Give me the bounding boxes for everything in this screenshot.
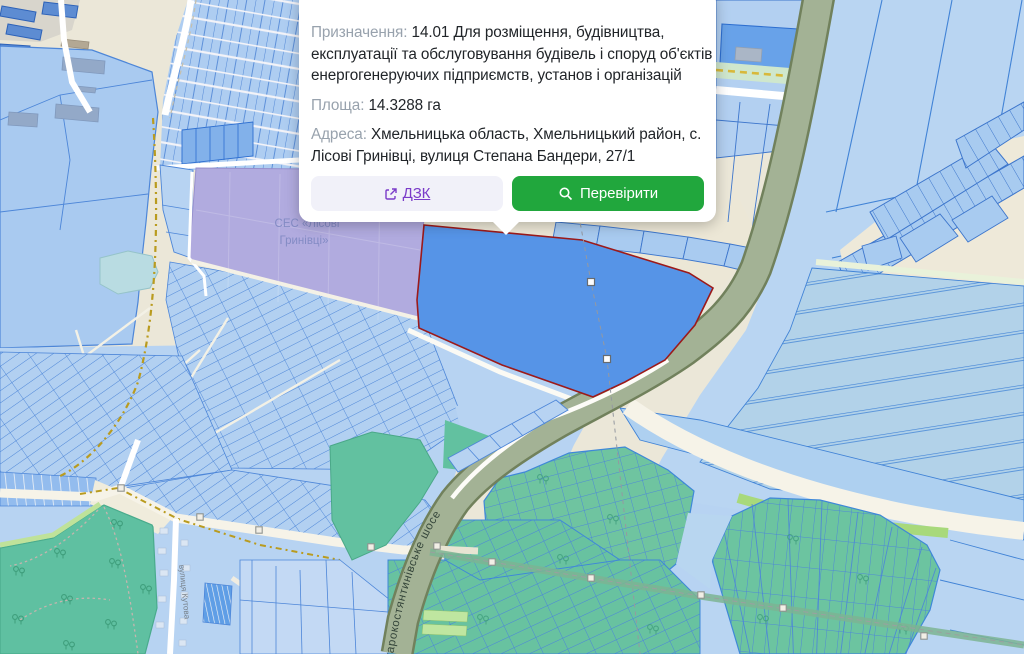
svg-text:Гринівці»: Гринівці»: [280, 235, 329, 247]
